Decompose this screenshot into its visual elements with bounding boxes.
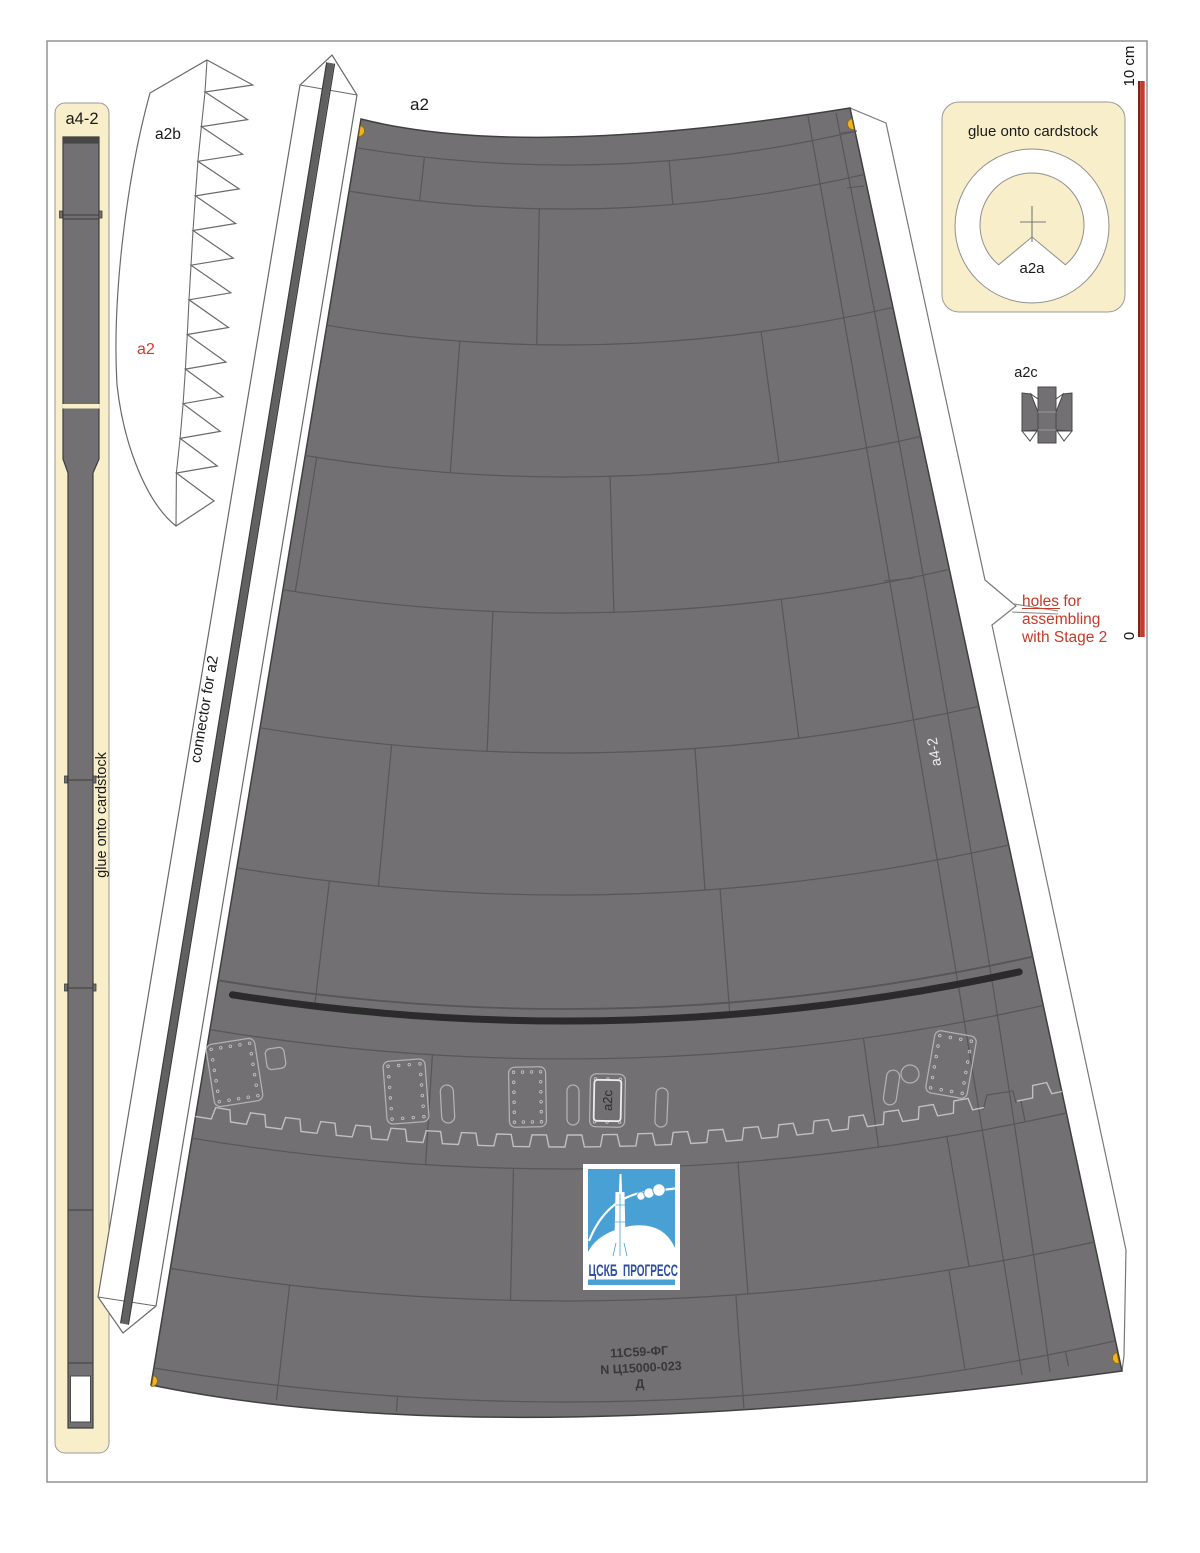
svg-text:glue onto cardstock: glue onto cardstock xyxy=(968,123,1099,140)
svg-text:a2c: a2c xyxy=(600,1089,615,1111)
svg-text:Д: Д xyxy=(635,1377,645,1391)
svg-text:ЦСКБ: ЦСКБ xyxy=(589,1262,618,1280)
svg-text:10 cm: 10 cm xyxy=(1121,46,1138,87)
svg-text:a2: a2 xyxy=(137,341,155,358)
svg-text:a4-2: a4-2 xyxy=(65,110,98,128)
svg-text:0: 0 xyxy=(1121,632,1138,640)
svg-text:a2: a2 xyxy=(410,95,429,114)
svg-text:a2c: a2c xyxy=(1014,365,1037,381)
svg-text:glue onto cardstock: glue onto cardstock xyxy=(94,751,110,877)
svg-text:a2a: a2a xyxy=(1019,260,1045,277)
svg-text:assembling: assembling xyxy=(1022,611,1100,628)
svg-text:holes for: holes for xyxy=(1022,593,1081,610)
svg-text:with Stage 2: with Stage 2 xyxy=(1021,629,1107,646)
svg-text:ПРОГРЕСС: ПРОГРЕСС xyxy=(623,1262,678,1280)
svg-text:a2b: a2b xyxy=(155,126,181,143)
